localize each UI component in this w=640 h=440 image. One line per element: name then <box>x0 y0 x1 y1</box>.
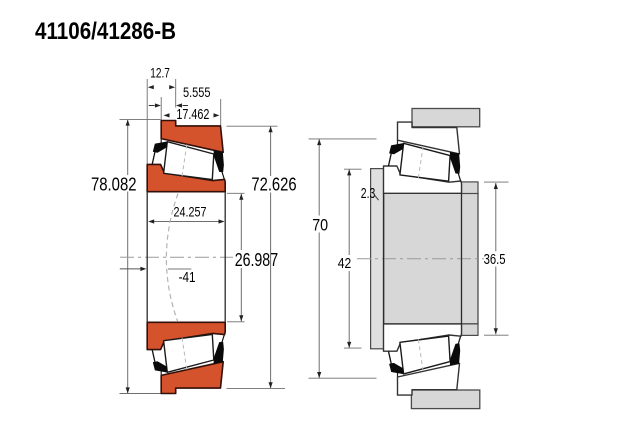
svg-text:17.462: 17.462 <box>176 106 209 123</box>
svg-text:2.3: 2.3 <box>361 185 376 202</box>
svg-text:36.5: 36.5 <box>484 252 506 268</box>
svg-text:-41: -41 <box>179 269 196 286</box>
svg-text:72.626: 72.626 <box>251 173 296 194</box>
svg-text:41106/41286-B: 41106/41286-B <box>35 18 176 45</box>
svg-text:26.987: 26.987 <box>235 249 278 270</box>
svg-text:24.257: 24.257 <box>174 204 207 220</box>
svg-text:78.082: 78.082 <box>91 173 137 194</box>
svg-text:70: 70 <box>312 215 328 234</box>
svg-text:42: 42 <box>338 256 352 272</box>
svg-text:12.7: 12.7 <box>150 65 170 81</box>
svg-text:5.555: 5.555 <box>183 84 211 100</box>
